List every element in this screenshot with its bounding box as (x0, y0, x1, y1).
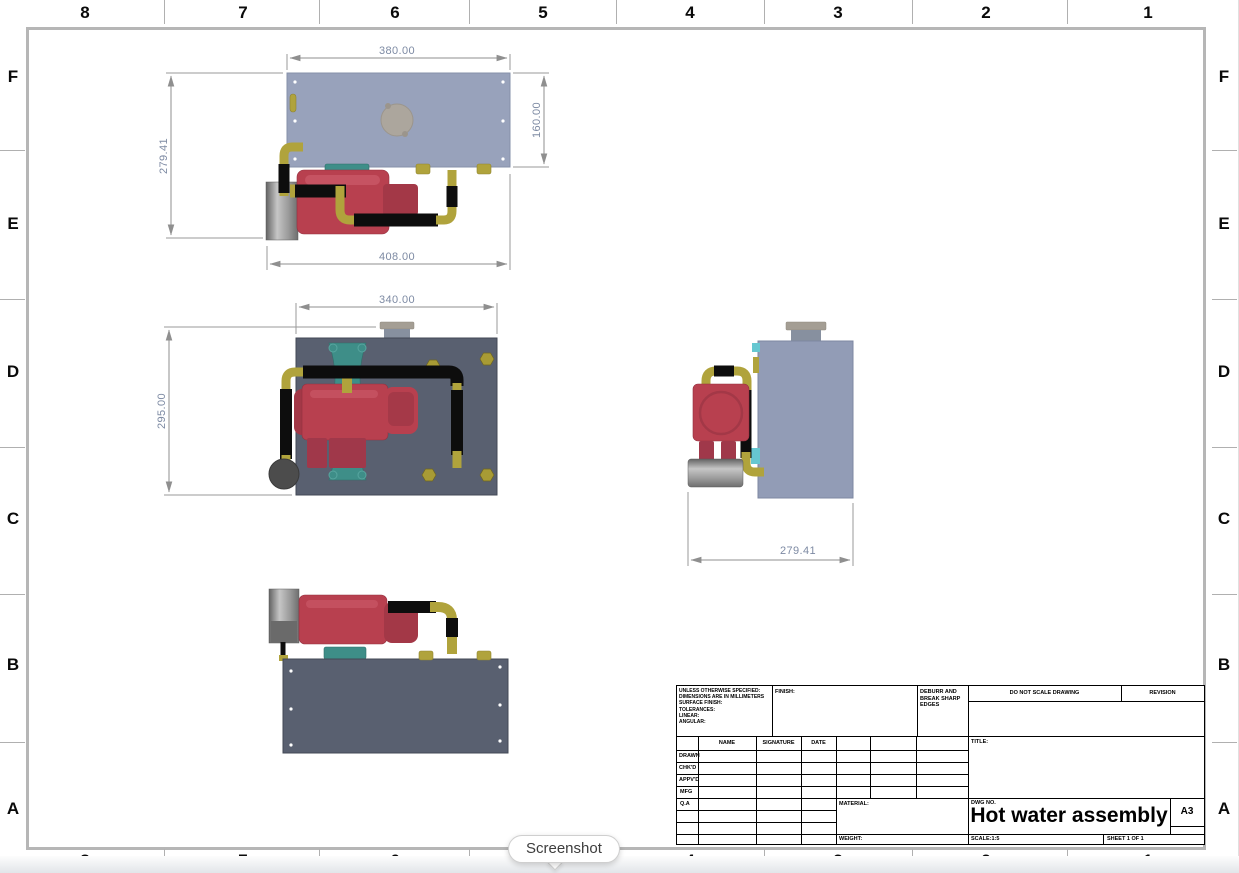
pump-leg (329, 438, 366, 468)
col-signature: SIGNATURE (756, 736, 801, 750)
dim-lines (688, 492, 853, 566)
filler-cap (381, 104, 413, 136)
dim-279-left: 279.41 (158, 138, 170, 174)
cylinder-tip (271, 621, 297, 643)
col-name: NAME (698, 736, 756, 750)
tank-side (758, 341, 853, 498)
cad-drawing-screenshot: { "sheet": { "border_columns": ["8","7",… (0, 0, 1239, 873)
col-date: DATE (801, 736, 836, 750)
deburr-note: DEBURR AND BREAK SHARP EDGES (920, 689, 967, 709)
drain-port (269, 459, 299, 489)
scale-label: SCALE:1:5 (971, 836, 999, 843)
row-chkd: CHK'D (679, 762, 696, 774)
finish-label: FINISH: (775, 689, 795, 696)
dim-295: 295.00 (156, 393, 168, 429)
pipe-stub (477, 651, 491, 660)
paper-size: A3 (1170, 798, 1204, 826)
pump-motor-face (388, 392, 414, 426)
pump-highlight (306, 600, 378, 608)
pipe-stub (419, 651, 433, 660)
dim-279-side: 279.41 (780, 545, 816, 557)
cap-neck (791, 330, 821, 341)
tolerance-note: UNLESS OTHERWISE SPECIFIED: DIMENSIONS A… (679, 688, 771, 725)
row-qa: Q.A (680, 798, 690, 810)
dim-380: 380.00 (379, 45, 415, 57)
tank-tab-cyan (751, 448, 760, 464)
view-side: 279.41 (688, 322, 853, 566)
view-front: 340.00 295.00 (156, 294, 497, 495)
screenshot-tooltip: Screenshot (508, 835, 620, 863)
pump-highlight (305, 175, 380, 185)
material-label: MATERIAL: (839, 801, 869, 808)
cap-lip (786, 322, 826, 330)
title-block: UNLESS OTHERWISE SPECIFIED: DIMENSIONS A… (676, 685, 1205, 845)
cap-lip (380, 322, 414, 329)
tank-tab-yellow (753, 357, 759, 373)
sheet-label: SHEET 1 OF 1 (1107, 836, 1144, 843)
weight-label: WEIGHT: (839, 836, 862, 843)
bracket-teal (324, 647, 366, 659)
do-not-scale-label: DO NOT SCALE DRAWING (968, 686, 1121, 701)
pump-motor (383, 184, 418, 216)
title-label: TITLE: (971, 739, 988, 746)
pipe-stub (416, 164, 430, 174)
mount-plate (283, 659, 508, 753)
revision-label: REVISION (1121, 686, 1204, 701)
view-top: 380.00 160.00 279.41 408.00 (158, 45, 549, 270)
tank-tab-cyan (752, 343, 760, 352)
drawing-title: Hot water assembly (968, 803, 1170, 829)
pipe-stub (477, 164, 491, 174)
dim-408: 408.00 (379, 251, 415, 263)
tank-fitting (290, 94, 296, 112)
accumulator-cylinder (688, 459, 743, 487)
row-mfg: MFG (680, 786, 692, 798)
cap-notch (385, 103, 391, 109)
row-drawn: DRAWN (679, 750, 700, 762)
bottom-fade (0, 856, 1239, 873)
dim-340: 340.00 (379, 294, 415, 306)
row-appvd: APPV'D (679, 774, 699, 786)
pump-leg (307, 438, 327, 468)
view-bottom (269, 589, 508, 753)
dim-160: 160.00 (531, 102, 543, 138)
cap-notch (402, 131, 408, 137)
